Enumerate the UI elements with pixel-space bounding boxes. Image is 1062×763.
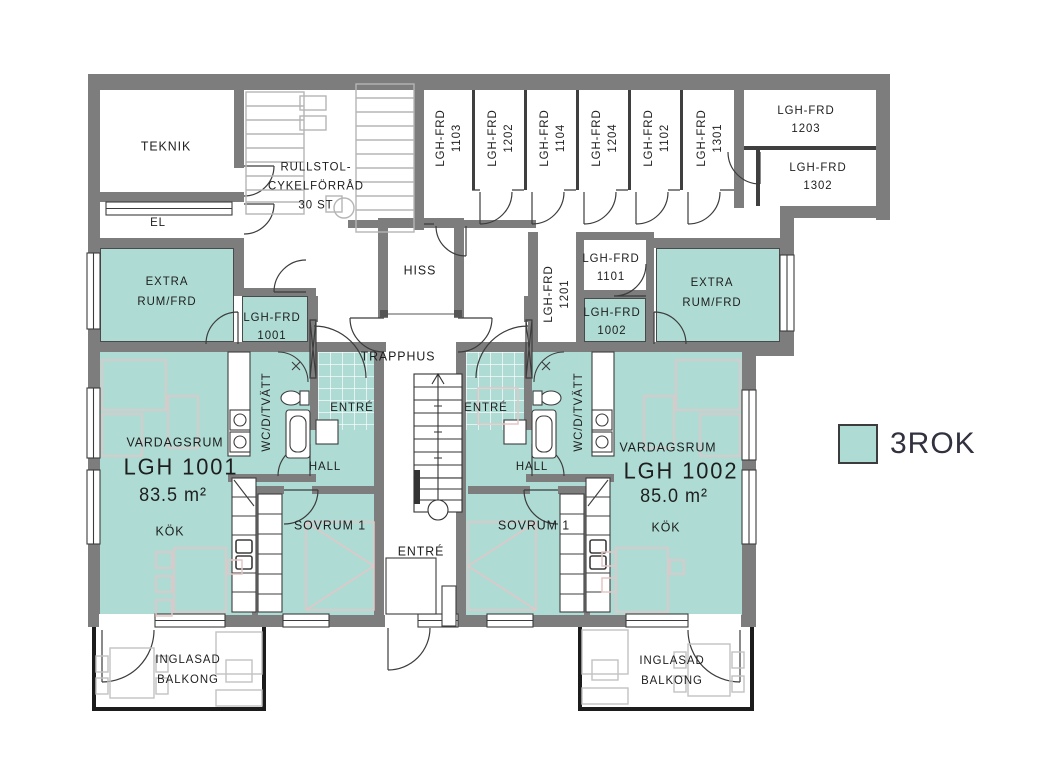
label-apartment-area-1001: 83.5 m² (139, 485, 207, 507)
label-el: EL (150, 215, 166, 229)
label-livingroom-right: VARDAGSRUM (619, 440, 716, 455)
label-storage-1204: LGH-FRD1204 (588, 109, 620, 166)
legend-label: 3ROK (890, 427, 976, 461)
label-storage-1202: LGH-FRD1202 (484, 109, 516, 166)
label-bathroom-left: WC/D/TVÄTT (259, 372, 273, 451)
label-hall-left: HALL (309, 459, 341, 473)
label-bike-storage: RULLSTOL- CYKELFÖRRÅD 30 ST (268, 158, 364, 215)
elevator-door-marks (380, 310, 462, 317)
legend-color-swatch (838, 424, 878, 464)
label-hiss: HISS (404, 263, 437, 278)
label-storage-1103: LGH-FRD1103 (432, 109, 464, 166)
label-bathroom-right: WC/D/TVÄTT (571, 372, 585, 451)
label-extra-room-right: EXTRARUM/FRD (682, 272, 741, 312)
label-kitchen-right: KÖK (652, 520, 681, 535)
label-apartment-id-1002: LGH 1002 (624, 458, 739, 485)
label-storage-1002: LGH-FRD1002 (583, 303, 640, 339)
label-storage-1101: LGH-FRD1101 (582, 249, 639, 285)
label-bedroom-right: SOVRUM 1 (498, 518, 570, 533)
label-storage-1302: LGH-FRD1302 (789, 158, 846, 194)
label-livingroom-left: VARDAGSRUM (126, 435, 223, 450)
label-entre-common: ENTRÉ (398, 544, 445, 559)
label-hall-right: HALL (516, 459, 548, 473)
label-apartment-id-1001: LGH 1001 (124, 454, 239, 481)
label-extra-room-left: EXTRARUM/FRD (137, 271, 196, 311)
label-entry-left: ENTRÉ (330, 400, 373, 414)
label-storage-1104: LGH-FRD1104 (536, 109, 568, 166)
floor-plan: TEKNIK EL RULLSTOL- CYKELFÖRRÅD 30 ST LG… (0, 0, 1062, 763)
label-storage-1203: LGH-FRD1203 (777, 101, 834, 137)
label-kitchen-left: KÖK (156, 524, 185, 539)
label-storage-1102: LGH-FRD1102 (640, 109, 672, 166)
label-storage-1201: LGH-FRD1201 (540, 265, 572, 322)
label-apartment-area-1002: 85.0 m² (640, 486, 708, 508)
label-storage-1001: LGH-FRD1001 (243, 308, 300, 344)
label-trapphus: TRAPPHUS (361, 349, 436, 364)
label-entry-right: ENTRÉ (464, 400, 507, 414)
label-balcony-left: INGLASADBALKONG (155, 649, 220, 689)
label-storage-1301: LGH-FRD1301 (693, 109, 725, 166)
label-bedroom-left: SOVRUM 1 (294, 518, 366, 533)
label-balcony-right: INGLASADBALKONG (639, 650, 704, 690)
label-teknik: TEKNIK (141, 139, 191, 154)
stairs-icon (414, 374, 462, 520)
